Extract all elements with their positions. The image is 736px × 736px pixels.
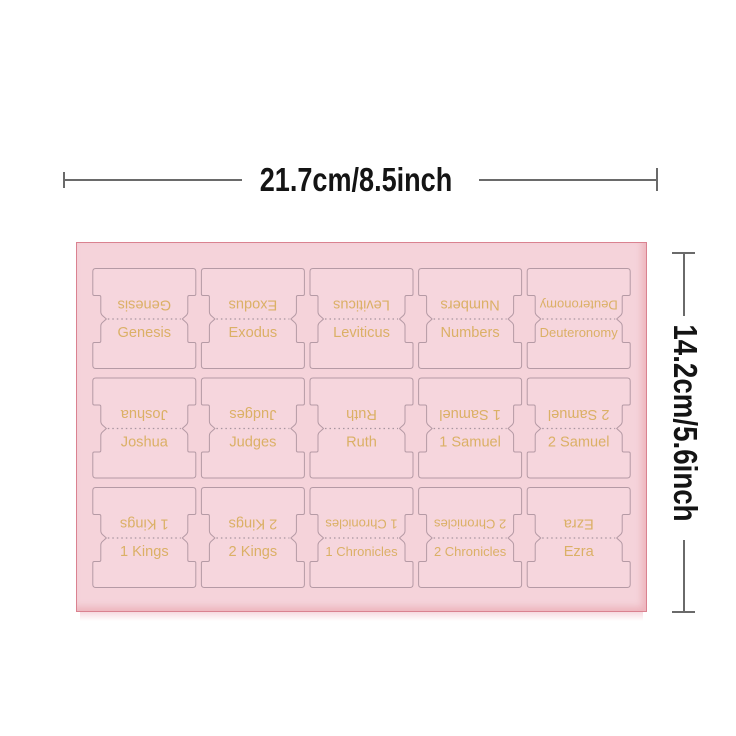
svg-text:2 Chronicles: 2 Chronicles: [433, 517, 506, 532]
svg-text:Ezra: Ezra: [564, 544, 595, 560]
svg-text:1 Samuel: 1 Samuel: [439, 435, 501, 451]
svg-text:1 Samuel: 1 Samuel: [439, 406, 501, 422]
svg-text:2 Samuel: 2 Samuel: [548, 406, 610, 422]
svg-text:Leviticus: Leviticus: [333, 325, 390, 341]
svg-text:Ruth: Ruth: [346, 435, 377, 451]
svg-text:2 Kings: 2 Kings: [229, 544, 278, 560]
svg-text:Deuteronomy: Deuteronomy: [540, 325, 619, 340]
svg-text:2 Chronicles: 2 Chronicles: [434, 544, 507, 559]
svg-text:1 Kings: 1 Kings: [120, 516, 169, 532]
svg-text:Genesis: Genesis: [118, 297, 172, 313]
svg-text:Leviticus: Leviticus: [333, 297, 390, 313]
svg-text:Numbers: Numbers: [440, 325, 499, 341]
svg-text:Judges: Judges: [229, 435, 276, 451]
svg-text:Exodus: Exodus: [229, 297, 278, 313]
svg-text:Joshua: Joshua: [120, 406, 168, 422]
svg-text:Judges: Judges: [229, 406, 276, 422]
svg-text:2 Samuel: 2 Samuel: [548, 435, 610, 451]
svg-text:1 Chronicles: 1 Chronicles: [325, 517, 398, 532]
svg-text:1 Kings: 1 Kings: [120, 544, 169, 560]
svg-text:Joshua: Joshua: [121, 435, 169, 451]
svg-text:1 Chronicles: 1 Chronicles: [325, 544, 398, 559]
svg-text:Exodus: Exodus: [229, 325, 278, 341]
svg-text:Genesis: Genesis: [118, 325, 172, 341]
svg-text:Numbers: Numbers: [440, 297, 499, 313]
svg-text:2 Kings: 2 Kings: [229, 516, 278, 532]
svg-text:Ezra: Ezra: [563, 516, 594, 532]
svg-text:Deuteronomy: Deuteronomy: [539, 298, 618, 313]
svg-text:Ruth: Ruth: [346, 406, 377, 422]
